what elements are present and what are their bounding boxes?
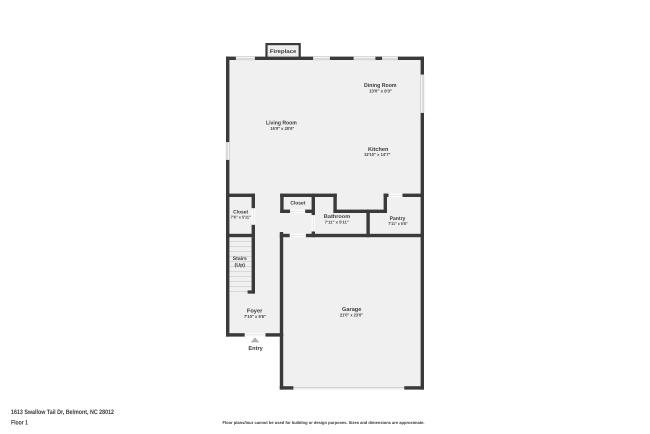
svg-text:(Up): (Up)	[235, 263, 246, 269]
svg-text:Fireplace: Fireplace	[270, 49, 297, 55]
svg-text:1613 Swallow Tail Dr, Belmont,: 1613 Swallow Tail Dr, Belmont, NC 28012	[11, 409, 114, 416]
svg-text:13'0" x 8'3": 13'0" x 8'3"	[369, 88, 392, 93]
svg-text:Closet: Closet	[290, 201, 305, 207]
svg-text:16'0" x 20'6": 16'0" x 20'6"	[270, 126, 294, 131]
svg-text:21'0" x 23'0": 21'0" x 23'0"	[340, 312, 363, 317]
svg-text:12'10" x 14'7": 12'10" x 14'7"	[364, 152, 391, 157]
svg-text:7'10" x 5'6": 7'10" x 5'6"	[244, 314, 266, 319]
svg-text:Entry: Entry	[248, 346, 263, 352]
svg-text:Floor plans/tour cannot be use: Floor plans/tour cannot be used for buil…	[223, 420, 425, 425]
svg-text:Stairs: Stairs	[233, 256, 247, 262]
svg-text:7'11" x 5'11": 7'11" x 5'11"	[325, 219, 349, 224]
svg-text:7'11" x 5'8": 7'11" x 5'8"	[388, 221, 407, 226]
svg-text:Floor 1: Floor 1	[11, 419, 28, 426]
svg-text:7'6" x 5'11": 7'6" x 5'11"	[231, 215, 251, 220]
